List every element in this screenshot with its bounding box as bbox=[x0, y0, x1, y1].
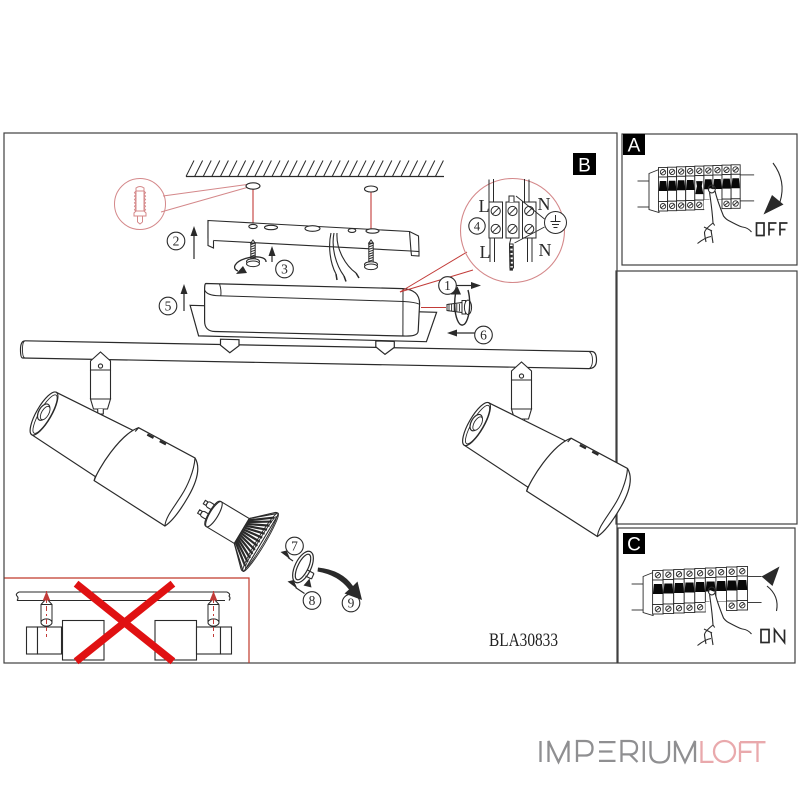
svg-text:L: L bbox=[479, 196, 490, 216]
svg-text:6: 6 bbox=[480, 328, 487, 343]
svg-text:4: 4 bbox=[474, 219, 481, 233]
svg-text:BLA30833: BLA30833 bbox=[489, 630, 558, 651]
svg-text:B: B bbox=[578, 156, 591, 177]
svg-text:N: N bbox=[538, 194, 551, 214]
svg-text:8: 8 bbox=[309, 593, 316, 608]
svg-text:7: 7 bbox=[291, 539, 298, 554]
svg-text:3: 3 bbox=[281, 262, 288, 277]
svg-text:9: 9 bbox=[348, 596, 355, 611]
svg-text:2: 2 bbox=[173, 234, 180, 249]
svg-text:N: N bbox=[539, 240, 552, 260]
svg-text:L: L bbox=[480, 242, 491, 262]
svg-text:5: 5 bbox=[165, 299, 172, 314]
svg-text:C: C bbox=[627, 535, 641, 556]
svg-text:1: 1 bbox=[444, 278, 451, 293]
svg-text:A: A bbox=[628, 136, 641, 157]
